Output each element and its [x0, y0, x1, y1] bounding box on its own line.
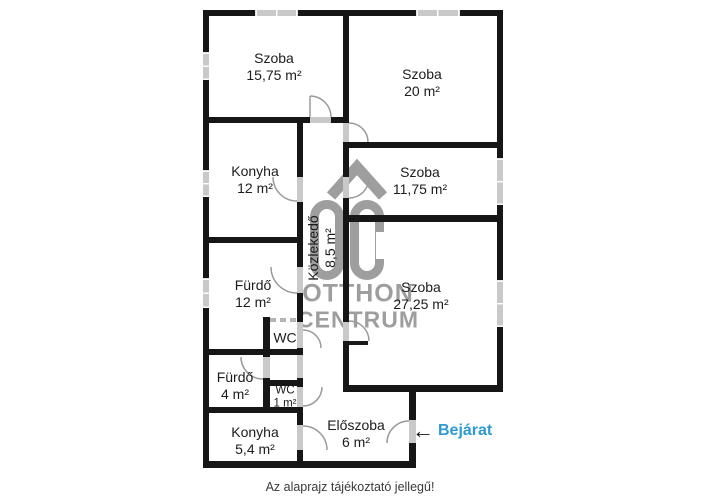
room-area: 12 m²: [235, 294, 272, 311]
room-name: Konyha: [231, 424, 278, 441]
room-label-konyha-54: Konyha 5,4 m²: [231, 424, 278, 458]
room-area: 5,4 m²: [231, 441, 278, 458]
room-area: 8,5 m²: [322, 215, 339, 280]
room-name: Konyha: [231, 163, 278, 180]
room-name: Közlekedő: [305, 215, 322, 280]
room-name: Fürdő: [235, 277, 272, 294]
room-name: Előszoba: [327, 417, 385, 434]
room-name: WC: [273, 330, 296, 347]
room-label-eloszoba: Előszoba 6 m²: [327, 417, 385, 451]
room-label-konyha-12: Konyha 12 m²: [231, 163, 278, 197]
floorplan: OTTHON CENTRUM: [0, 0, 706, 500]
room-name: Szoba: [393, 164, 447, 181]
room-name: Szoba: [246, 50, 301, 67]
room-area: 20 m²: [402, 83, 442, 100]
room-label-furdo-4: Fürdő 4 m²: [217, 369, 254, 403]
room-area: 6 m²: [327, 434, 385, 451]
room-area: 1 m²: [274, 397, 297, 410]
disclaimer-text: Az alaprajz tájékoztató jellegű!: [266, 480, 435, 494]
room-area: 12 m²: [231, 180, 278, 197]
room-label-wc-1: WC 1 m²: [274, 385, 297, 410]
room-label-szoba-1175: Szoba 11,75 m²: [393, 164, 447, 198]
room-label-kozlekedo: Közlekedő 8,5 m²: [305, 215, 339, 280]
room-name: WC: [274, 385, 297, 398]
entrance-arrow-icon: ←: [412, 419, 434, 443]
room-label-szoba-20: Szoba 20 m²: [402, 66, 442, 100]
room-area: 27,25 m²: [393, 296, 448, 313]
room-name: Szoba: [393, 279, 448, 296]
room-area: 15,75 m²: [246, 67, 301, 84]
room-label-wc: WC: [273, 330, 296, 347]
room-name: Szoba: [402, 66, 442, 83]
room-area: 4 m²: [217, 386, 254, 403]
entrance-marker: ← Bejárat: [412, 419, 492, 443]
entrance-label: Bejárat: [438, 422, 492, 440]
house-roof-icon: [331, 167, 383, 196]
room-name: Fürdő: [217, 369, 254, 386]
room-label-szoba-1575: Szoba 15,75 m²: [246, 50, 301, 84]
room-label-szoba-2725: Szoba 27,25 m²: [393, 279, 448, 313]
room-area: 11,75 m²: [393, 181, 447, 198]
room-label-furdo-12: Fürdő 12 m²: [235, 277, 272, 311]
